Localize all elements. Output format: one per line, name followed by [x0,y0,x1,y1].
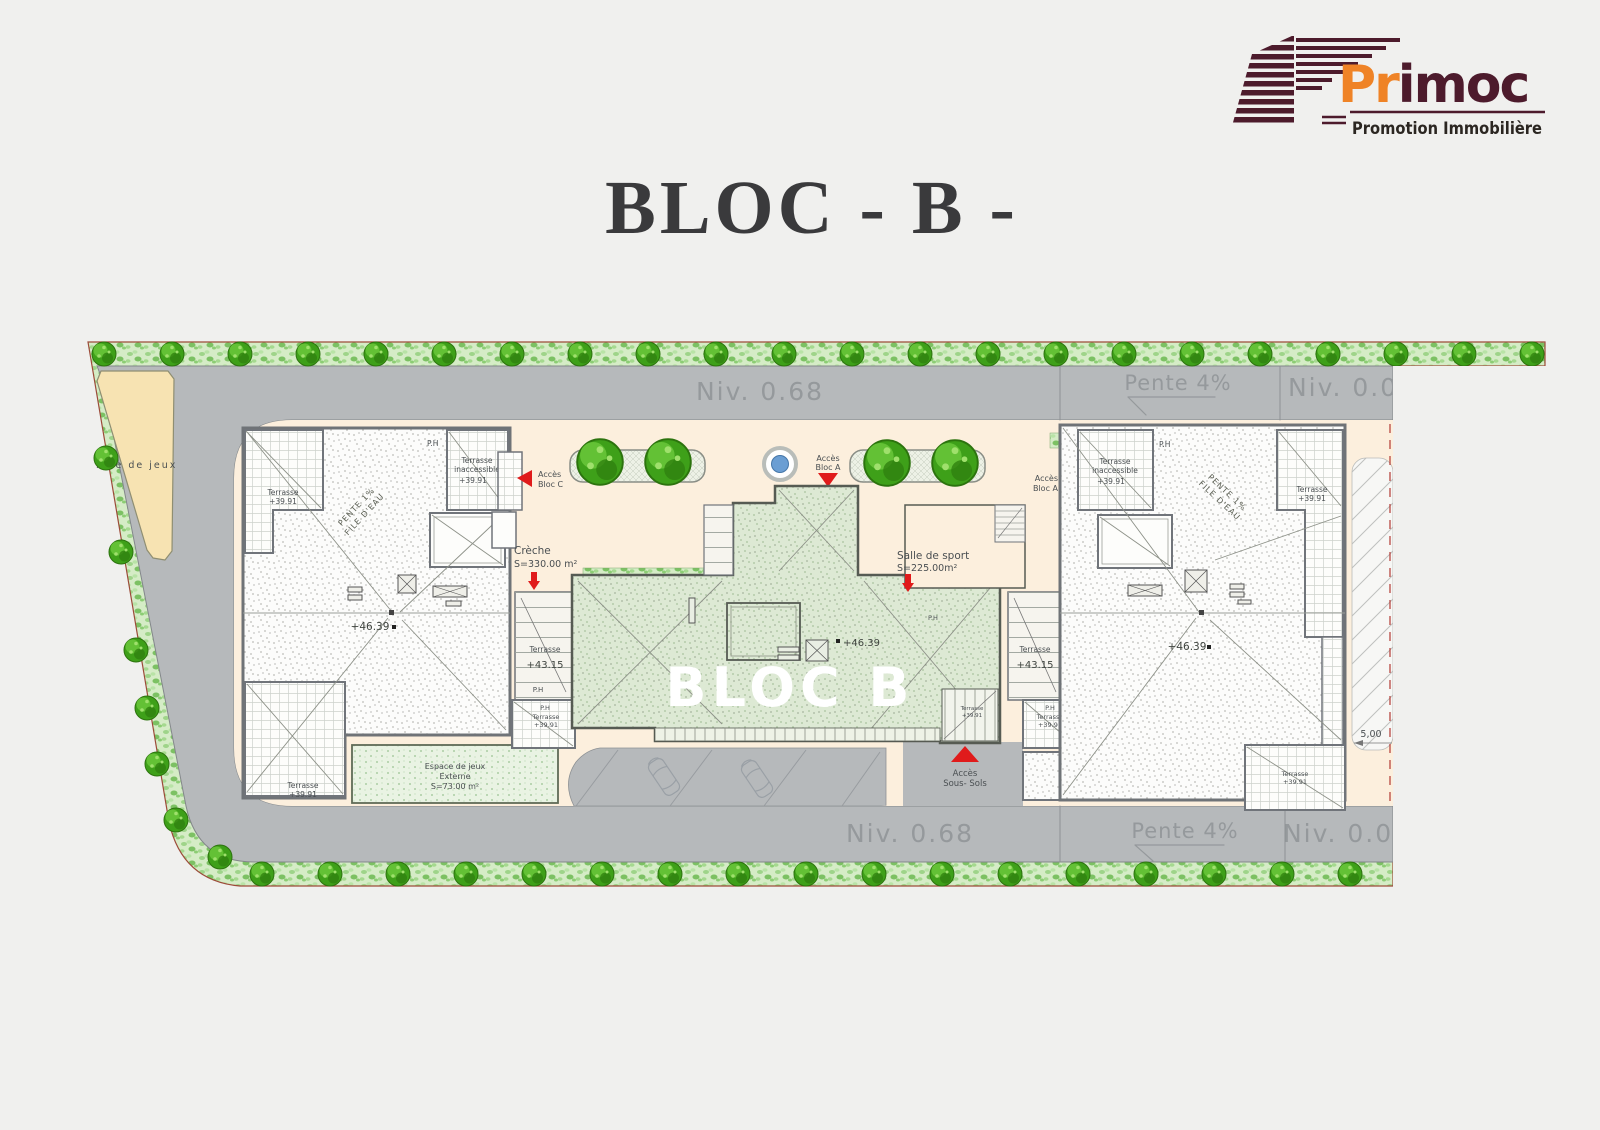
road-level-top-left: Niv. 0.68 [696,377,824,406]
tree-icon [318,862,342,886]
tree-icon [658,862,682,886]
tree-icon [704,342,728,366]
dimension-label: 5,00 [1360,729,1381,740]
plan-crop-mask [1393,366,1600,900]
tree-icon [840,342,864,366]
tree-icon [1202,862,1226,886]
tree-icon [908,342,932,366]
tree-icon [998,862,1022,886]
tree-icon [590,862,614,886]
creche-label-1: Crèche [514,545,551,557]
tree-icon [1134,862,1158,886]
tree-icon [145,752,169,776]
tree-icon [386,862,410,886]
tree-icon [864,440,910,486]
right-building: PENTE 1% FILE D'EAU Terrasse inaccessibl… [1060,425,1345,810]
espace-de-jeux: Espace de jeux Externe S=73.00 m² [352,745,558,803]
tree-icon [636,342,660,366]
ph-label: P.H [533,686,544,694]
tree-icon [208,845,232,869]
terrace-label: Terrasse [267,488,299,497]
terrace-label: Terrasse [1281,770,1309,778]
tree-icon [1316,342,1340,366]
tree-icon [124,638,148,662]
tree-icon [135,696,159,720]
sport-label-1: Salle de sport [897,550,969,562]
tree-icon [862,862,886,886]
access-bloc-a-right-label-1: Accès [1035,473,1058,483]
tree-icon [94,446,118,470]
page-title: BLOC - B - [605,166,1019,250]
access-bloc-c-label-1: Accès [538,469,561,479]
tree-icon [1270,862,1294,886]
tree-icon [577,439,623,485]
terrace-label: Terrasse [532,713,560,721]
tree-icon [1338,862,1362,886]
tree-icon [1520,342,1544,366]
sport-hall: Salle de sport S=225.00m² [897,505,1025,592]
road-level-bottom-left: Niv. 0.68 [846,819,974,848]
brand-tagline: Promotion Immobilière [1352,119,1542,139]
access-sous-sols-label-2: Sous- Sols [943,779,987,789]
level-label: +39.91 [459,476,487,485]
access-sous-sols-label-1: Accès [953,768,978,779]
access-bloc-c-label-2: Bloc C [538,480,564,489]
terrace-label: inaccessible [1092,466,1138,475]
ph-label: P.H [540,704,550,712]
tree-icon [250,862,274,886]
tree-icon [1112,342,1136,366]
level-label: +39.91 [1298,494,1326,503]
level-label: +46.39 [843,638,880,649]
tree-icon [1044,342,1068,366]
terrace-label: Terrasse [529,645,561,654]
right-hatch-zone: 5,00 [1352,424,1393,804]
creche-label-2: S=330.00 m² [514,559,578,570]
level-label: +43.15 [526,660,563,671]
level-label: +46.39 [1168,641,1207,653]
tree-icon [500,342,524,366]
tree-icon [1066,862,1090,886]
tree-icon [932,440,978,486]
ph-label: P.H [1045,704,1055,712]
level-label: +39.91 [534,721,558,729]
road-slope-bottom: Pente 4% [1131,819,1238,843]
tree-icon [296,342,320,366]
level-label: +43.15 [1016,660,1053,671]
tree-icon [92,342,116,366]
level-label: +39.91 [289,790,317,799]
access-bloc-a-center-label-2: Bloc A [815,463,841,472]
tree-icon [432,342,456,366]
tree-icon [726,862,750,886]
access-bloc-a-center-label-1: Accès [816,453,839,463]
tree-icon [976,342,1000,366]
terrace-label: Terrasse [287,781,319,790]
tree-icon [1452,342,1476,366]
logo-equal-lines-icon [1322,117,1346,123]
terrace-label: Terrasse [960,706,984,712]
terrace-label: Terrasse [1099,457,1131,466]
tree-icon [772,342,796,366]
ph-label: P.H [928,614,938,622]
logo-building-icon [1232,35,1294,126]
tree-icon [645,439,691,485]
road-level-bottom-right: Niv. 0.00 [1283,819,1411,848]
tree-icon [228,342,252,366]
level-label: +39.91 [962,713,982,719]
level-label: +39.91 [1097,477,1125,486]
espace-label-2: Externe [440,772,471,781]
espace-label-1: Espace de jeux [425,762,486,771]
tree-icon [364,342,388,366]
tree-icon [930,862,954,886]
espace-label-3: S=73.00 m² [431,782,479,791]
parking-area [568,748,886,806]
level-label: +39.91 [1283,778,1307,786]
level-label: +39.91 [1038,721,1062,729]
basement-ramp: Accès Sous- Sols [881,742,1045,806]
tree-icon [522,862,546,886]
brand-logo: Primoc Promotion Immobilière [1232,35,1545,139]
level-label: +46.39 [351,621,390,633]
level-label: +39.91 [269,497,297,506]
tree-icon [1248,342,1272,366]
road-slope-top: Pente 4% [1124,371,1231,395]
tree-icon [794,862,818,886]
tree-icon [1384,342,1408,366]
plan-canvas: Primoc Promotion Immobilière BLOC - B - … [0,0,1600,1130]
tree-icon [454,862,478,886]
terrace-label: Terrasse [1019,645,1051,654]
tree-icon [109,540,133,564]
colonnade [655,728,940,741]
tree-icon [160,342,184,366]
terrace-label: Terrasse [461,456,493,465]
access-bloc-a-right-label-2: Bloc A [1033,484,1059,493]
tree-icon [164,808,188,832]
terrace-label: inaccessible [454,465,500,474]
brand-name: Primoc [1338,55,1528,115]
terrace-label: Terrasse [1296,485,1328,494]
sport-label-2: S=225.00m² [897,563,957,574]
brand-prefix: Pr [1338,55,1400,115]
tree-icon [1180,342,1204,366]
tree-icon [568,342,592,366]
site-plan-page: Primoc Promotion Immobilière BLOC - B - … [0,0,1600,1130]
ph-label: P.H [1159,440,1170,449]
brand-suffix: imoc [1398,55,1529,115]
bloc-b-title: BLOC B [665,656,914,719]
ph-label: P.H [427,439,438,448]
